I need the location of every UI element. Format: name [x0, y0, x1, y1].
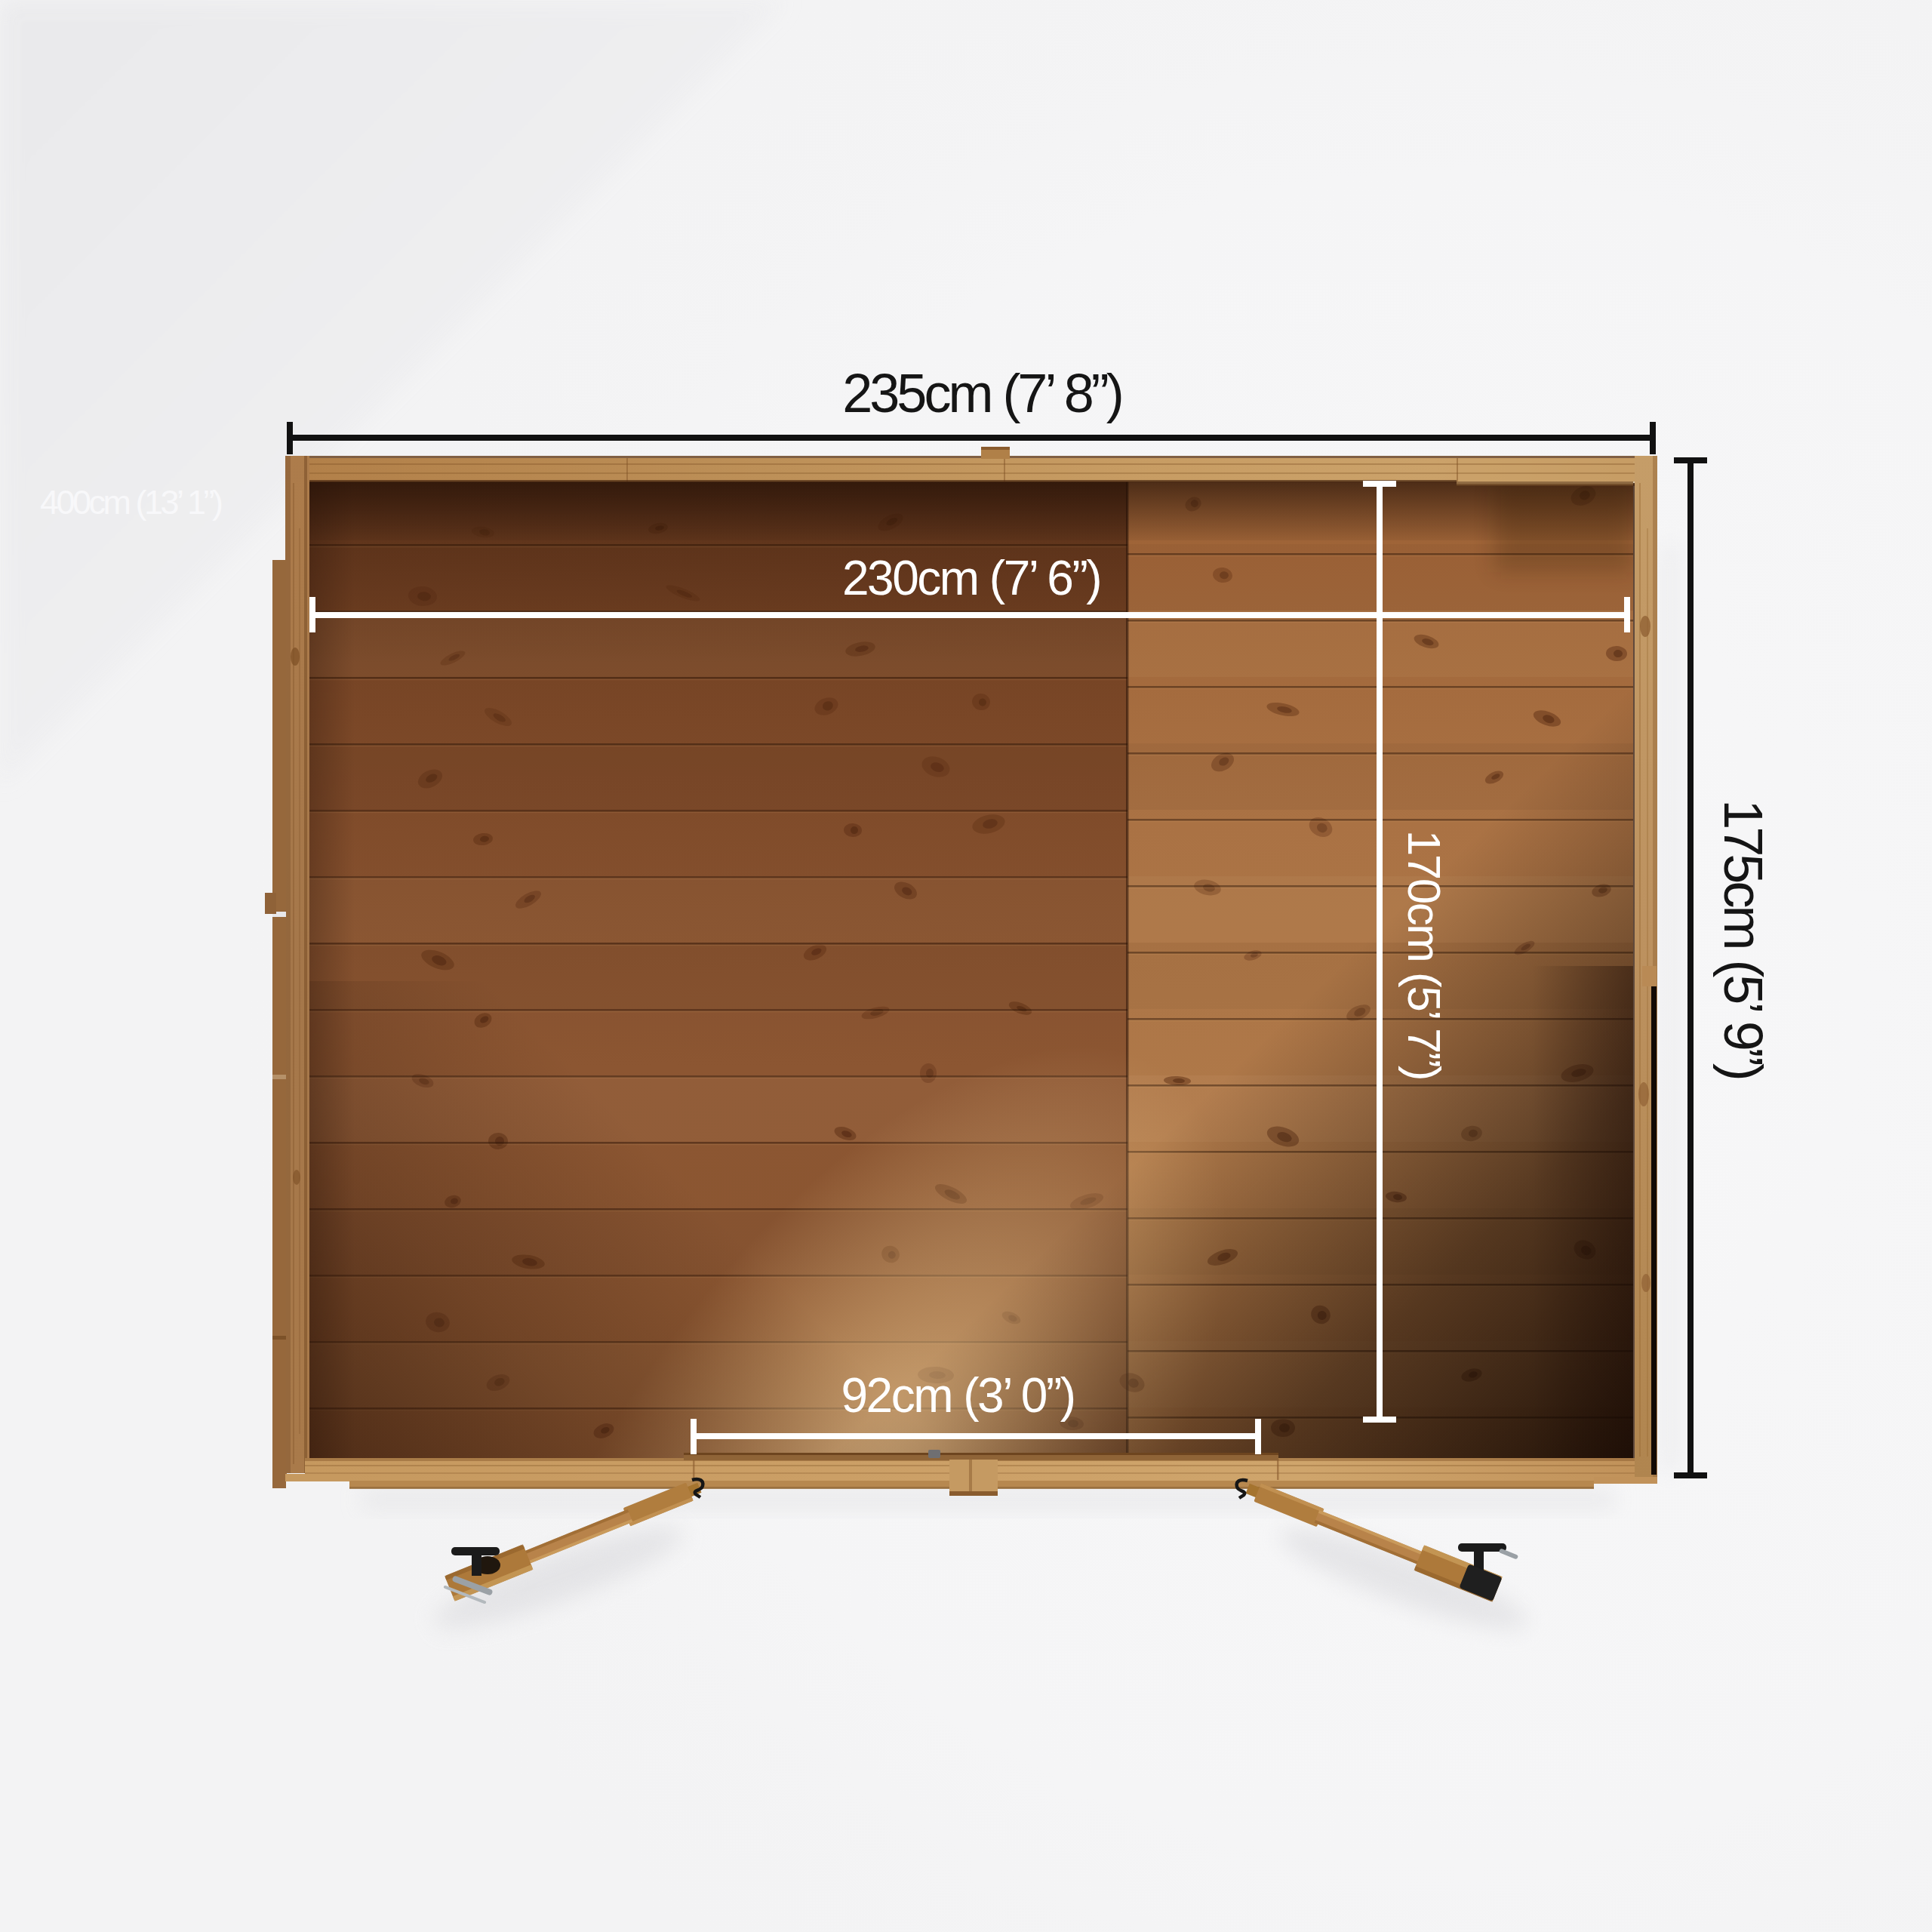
svg-text:230cm (7’ 6”): 230cm (7’ 6”): [842, 551, 1100, 605]
svg-text:92cm (3’ 0”): 92cm (3’ 0”): [841, 1368, 1074, 1423]
svg-text:235cm (7’ 8”): 235cm (7’ 8”): [842, 363, 1121, 423]
svg-text:170cm (5’ 7”): 170cm (5’ 7”): [1398, 830, 1451, 1079]
svg-text:175cm (5’ 9”): 175cm (5’ 9”): [1713, 799, 1774, 1078]
svg-text:400cm (13’ 1”): 400cm (13’ 1”): [40, 483, 222, 521]
